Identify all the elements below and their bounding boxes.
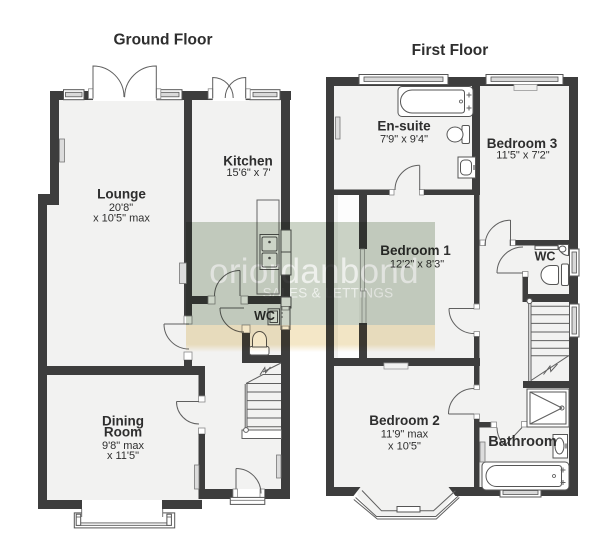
svg-text:SALES & LETTINGS: SALES & LETTINGS [263,286,394,301]
